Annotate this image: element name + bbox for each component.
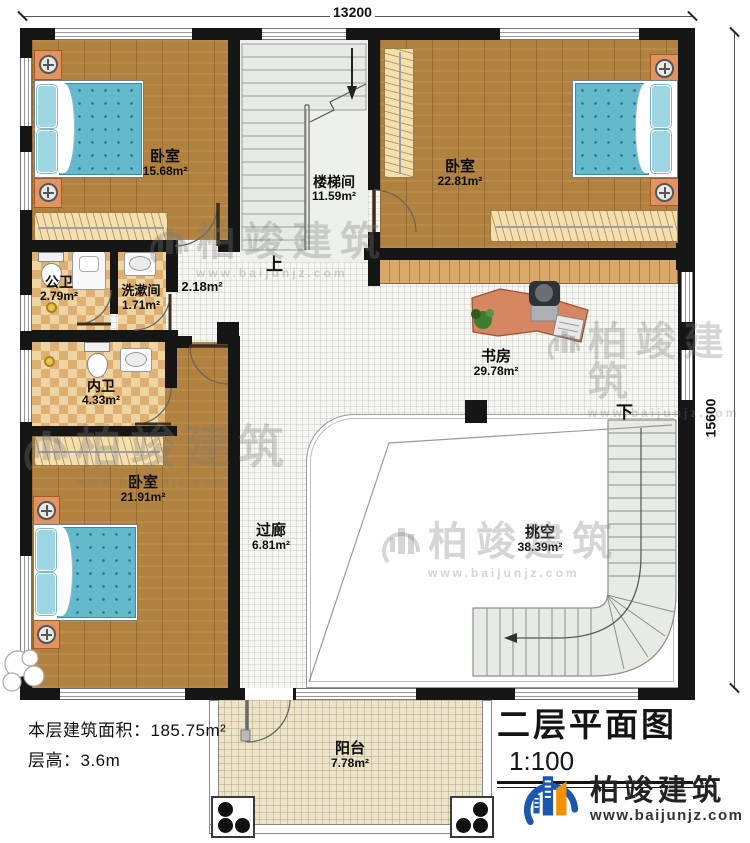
bed-top-right (572, 80, 678, 178)
toilet (84, 342, 110, 376)
wall-inner (218, 240, 240, 252)
nightstand (33, 620, 60, 649)
wall-inner (228, 336, 240, 688)
wall-pillar (465, 400, 487, 423)
nightstand (650, 54, 679, 82)
wall-inner (20, 240, 175, 252)
dimension-top-value: 13200 (330, 4, 375, 20)
window (296, 688, 416, 700)
dimension-line-right (734, 32, 735, 688)
window (20, 152, 32, 210)
wall-inner (166, 336, 192, 348)
lamp-icon (37, 501, 56, 520)
lamp-icon (655, 59, 674, 78)
floorplan-page: 卧室15.68m² 楼梯间11.59m² 卧室22.81m² 公卫2.79m² … (0, 0, 750, 843)
wall-inner (368, 260, 380, 286)
wall-inner (368, 28, 380, 190)
stairwell-floor (240, 40, 368, 262)
floor-height-info: 层高：3.6m (28, 746, 120, 771)
sink (124, 252, 156, 276)
window (20, 58, 32, 126)
wardrobe (34, 436, 164, 466)
floor-drain (44, 356, 55, 367)
wall-inner (110, 252, 118, 314)
lamp-icon (655, 183, 674, 202)
company-logo: 柏竣建筑 www.baijunjz.com (520, 768, 743, 832)
balcony-post (450, 796, 494, 838)
floor-drain (46, 302, 57, 313)
study-cabinet (368, 258, 678, 284)
company-name: 柏竣建筑 (590, 776, 743, 806)
lamp-icon (37, 625, 56, 644)
window (500, 28, 639, 40)
company-website: www.baijunjz.com (590, 807, 743, 824)
window (681, 272, 693, 322)
lamp-icon (39, 55, 58, 74)
lamp-icon (39, 183, 58, 202)
balcony-post (211, 796, 255, 838)
drawing-title: 二层平面图 (497, 706, 677, 743)
closet (384, 48, 414, 178)
company-logo-icon (520, 768, 582, 832)
balcony-door-opening (245, 688, 293, 700)
stairs-down-label: 下 (616, 398, 633, 423)
wardrobe (490, 210, 678, 242)
nightstand (34, 50, 62, 80)
wardrobe (34, 212, 168, 242)
wall-inner (166, 240, 178, 292)
nightstand (33, 496, 60, 525)
window (20, 295, 32, 331)
window (681, 350, 693, 400)
window (55, 28, 192, 40)
floor-area-info: 本层建筑面积：185.75m² (28, 716, 226, 741)
window (20, 350, 32, 422)
sink (120, 348, 152, 372)
washing-machine (72, 250, 106, 290)
window (20, 556, 32, 652)
wall-inner (364, 248, 678, 260)
wall-pillar (676, 243, 695, 270)
wall-inner (165, 342, 177, 388)
toilet (38, 252, 64, 286)
wall-inner (20, 426, 177, 436)
window (262, 28, 346, 40)
stairs-up-label: 上 (266, 250, 283, 275)
window (60, 688, 185, 700)
void-region-inner-line (310, 418, 674, 682)
bed-top-left (34, 80, 144, 178)
balcony-floor (217, 700, 482, 824)
nightstand (650, 178, 679, 206)
bed-bottom-left (33, 524, 138, 621)
dimension-right-value: 15600 (702, 396, 718, 441)
wall-inner (228, 28, 240, 250)
wall-inner (20, 330, 178, 342)
nightstand (34, 178, 62, 208)
